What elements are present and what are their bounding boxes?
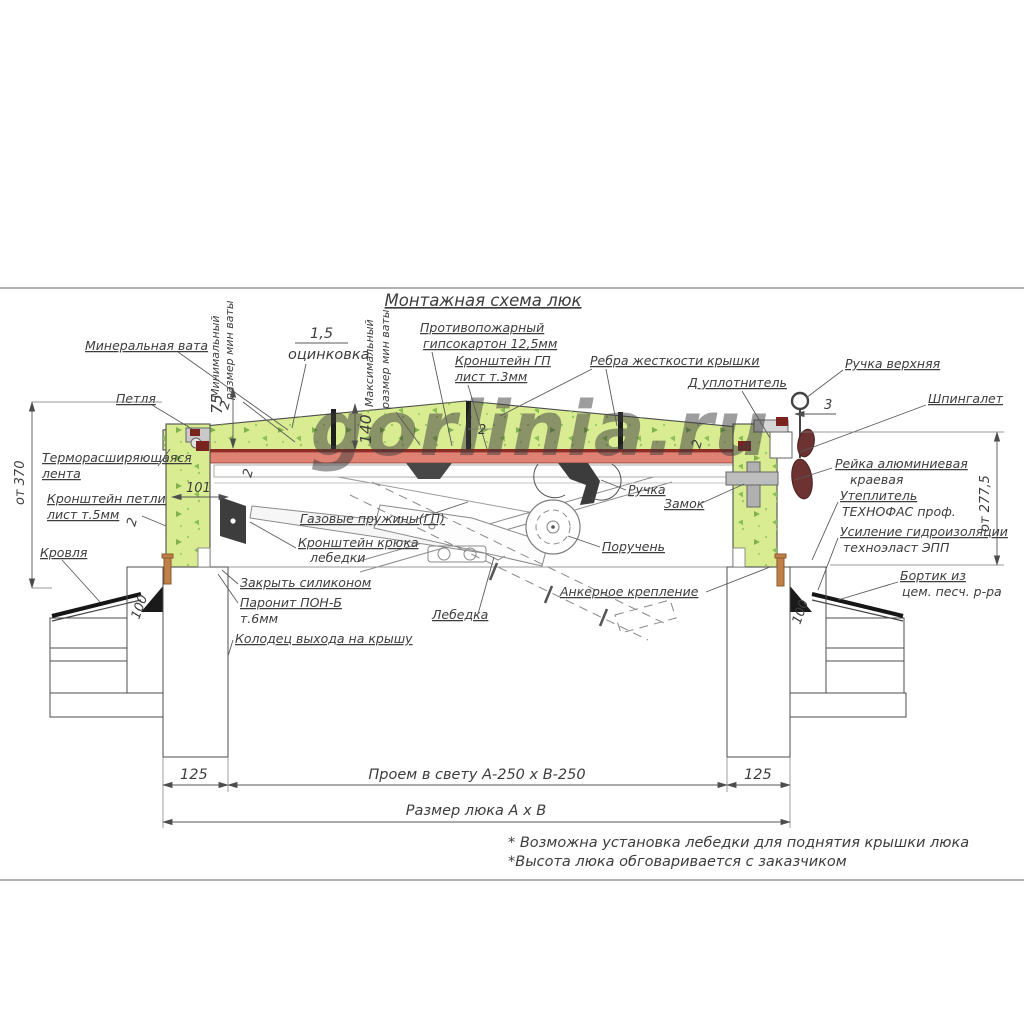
label-min-wool-1: Минимальный bbox=[209, 315, 222, 398]
label-handrail: Поручень bbox=[602, 539, 665, 554]
labels-right: Ручка верхняя Шпингалет 3 Рейка алюминие… bbox=[795, 356, 1008, 600]
dim-125-left: 125 bbox=[180, 767, 208, 783]
dim-3: 3 bbox=[824, 398, 832, 413]
label-handle: Ручка bbox=[628, 482, 666, 497]
label-well: Колодец выхода на крышу bbox=[235, 631, 413, 646]
label-max-wool-2: размер мин ваты bbox=[379, 309, 392, 410]
label-paronite-2: т.6мм bbox=[240, 611, 278, 626]
label-gas-springs: Газовые пружины(ГП) bbox=[300, 511, 445, 526]
label-silicone: Закрыть силиконом bbox=[240, 575, 371, 590]
label-insulation-2: ТЕХНОФАС проф. bbox=[842, 504, 956, 519]
shaft-wall-left: 100 bbox=[127, 567, 228, 757]
dim-2d: 2 bbox=[478, 423, 486, 438]
label-top-handle: Ручка верхняя bbox=[845, 356, 941, 371]
label-hinge-bracket-2: лист т.5мм bbox=[46, 507, 119, 522]
label-max-wool-1: Максимальный bbox=[363, 319, 376, 407]
dim-101: 101 bbox=[186, 481, 211, 496]
dim-140: 140 bbox=[357, 414, 375, 444]
label-hinge: Петля bbox=[116, 391, 156, 406]
dim-clear-opening: Проем в свету А-250 х В-250 bbox=[368, 767, 585, 783]
dim-hatch-size: Размер люка А х В bbox=[406, 803, 546, 819]
anchor-bolt-right bbox=[777, 556, 784, 586]
label-paronite-1: Паронит ПОН-Б bbox=[240, 595, 342, 610]
label-latch: Шпингалет bbox=[928, 391, 1004, 406]
dim-2c: 2 bbox=[124, 516, 141, 528]
label-thermo-tape-2: лента bbox=[41, 466, 81, 481]
frame-left bbox=[162, 424, 210, 584]
drawing-sheet: 100 100 bbox=[0, 0, 1024, 1024]
top-handle-ring bbox=[792, 393, 808, 409]
label-zinc-value: 1,5 bbox=[310, 326, 333, 342]
label-hook-bracket-2: лебедки bbox=[309, 550, 365, 565]
label-waterproofing-2: техноэласт ЭПП bbox=[843, 540, 950, 555]
note-1: * Возможна установка лебедки для подняти… bbox=[508, 835, 969, 851]
seal-left bbox=[196, 441, 209, 451]
label-min-wool-2: размер мин ваты bbox=[223, 300, 236, 401]
anchor-bolt-left bbox=[164, 556, 171, 584]
hatch-installation-diagram: 100 100 bbox=[0, 0, 1024, 1024]
label-alu-rail-2: краевая bbox=[850, 472, 904, 487]
note-2: *Высота люка обговаривается с заказчиком bbox=[508, 854, 847, 870]
label-curb-2: цем. песч. р-ра bbox=[902, 584, 1002, 599]
label-gp-bracket-2: лист т.3мм bbox=[454, 369, 527, 384]
label-thermo-tape-1: Терморасширяющаяся bbox=[42, 450, 192, 465]
label-lock: Замок bbox=[664, 496, 705, 511]
notes: * Возможна установка лебедки для подняти… bbox=[508, 835, 969, 870]
label-curb-1: Бортик из bbox=[900, 568, 966, 583]
label-zinc-text: оцинковка bbox=[288, 347, 369, 363]
label-fireproof-2: гипсокартон 12,5мм bbox=[423, 336, 557, 351]
label-insulation-1: Утеплитель bbox=[840, 488, 917, 503]
label-fireproof-1: Противопожарный bbox=[420, 320, 544, 335]
label-anchor: Анкерное крепление bbox=[559, 584, 699, 599]
label-d-seal: Д уплотнитель bbox=[687, 375, 787, 390]
dim-left-height: от 370 bbox=[13, 461, 28, 505]
label-hook-bracket-1: Кронштейн крюка bbox=[298, 535, 419, 550]
shaft-wall-right: 100 bbox=[727, 567, 826, 757]
label-mineral-wool: Минеральная вата bbox=[85, 338, 208, 353]
dim-right-height: от 277,5 bbox=[978, 475, 993, 532]
lock-bar bbox=[726, 472, 778, 485]
diagram-title: Монтажная схема люк bbox=[385, 291, 582, 310]
label-ribs: Ребра жесткости крышки bbox=[590, 353, 760, 368]
label-roof: Кровля bbox=[40, 545, 88, 560]
dim-125-right: 125 bbox=[744, 767, 772, 783]
label-gp-bracket-1: Кронштейн ГП bbox=[455, 353, 551, 368]
label-alu-rail-1: Рейка алюминиевая bbox=[835, 456, 968, 471]
label-hinge-bracket-1: Кронштейн петли bbox=[47, 491, 166, 506]
